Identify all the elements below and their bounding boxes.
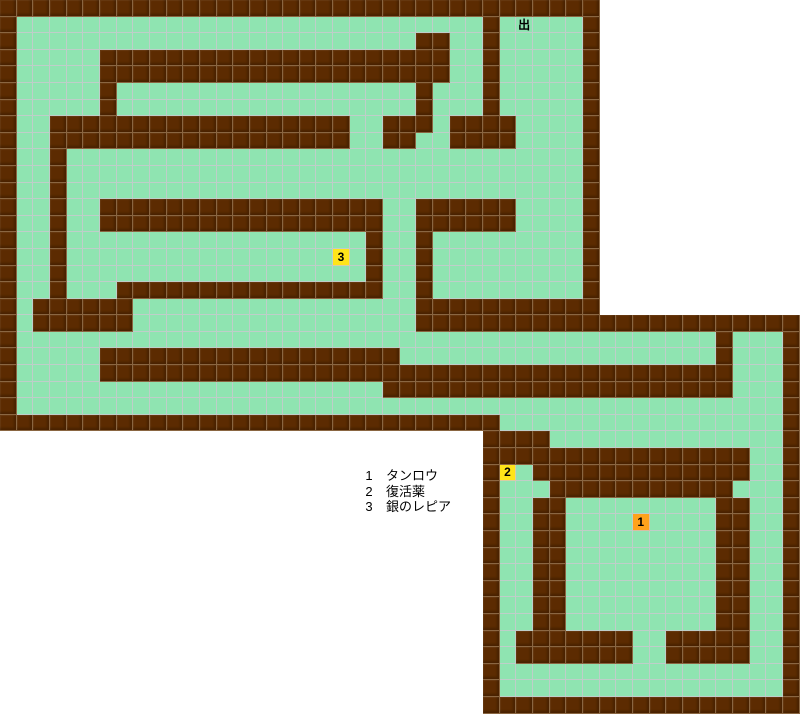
floor-tile	[766, 431, 783, 448]
floor-tile	[167, 315, 184, 332]
floor-tile	[250, 299, 267, 316]
floor-tile	[766, 548, 783, 565]
floor-tile	[516, 116, 533, 133]
empty-cell	[316, 431, 333, 448]
floor-tile	[167, 266, 184, 283]
floor-tile	[133, 315, 150, 332]
empty-cell	[716, 66, 733, 83]
floor-tile	[416, 133, 433, 150]
empty-cell	[666, 133, 683, 150]
floor-tile	[750, 514, 767, 531]
floor-tile	[766, 664, 783, 681]
wall-tile	[250, 66, 267, 83]
wall-tile	[483, 17, 500, 34]
wall-tile	[466, 415, 483, 432]
wall-tile	[550, 564, 567, 581]
empty-cell	[433, 631, 450, 648]
floor-tile	[516, 33, 533, 50]
empty-cell	[0, 465, 17, 482]
legend-item-3: 3 銀のレピア	[365, 499, 451, 515]
floor-tile	[466, 149, 483, 166]
wall-tile	[650, 365, 667, 382]
wall-tile	[733, 597, 750, 614]
wall-tile	[583, 183, 600, 200]
floor-tile	[516, 133, 533, 150]
empty-cell	[750, 149, 767, 166]
floor-tile	[700, 548, 717, 565]
wall-tile	[333, 66, 350, 83]
empty-cell	[666, 83, 683, 100]
empty-cell	[683, 0, 700, 17]
empty-cell	[67, 581, 84, 598]
wall-tile	[117, 0, 134, 17]
floor-tile	[316, 166, 333, 183]
empty-cell	[283, 465, 300, 482]
empty-cell	[283, 680, 300, 697]
floor-tile	[583, 398, 600, 415]
floor-tile	[350, 249, 367, 266]
empty-cell	[733, 149, 750, 166]
wall-tile	[167, 50, 184, 67]
floor-tile	[217, 33, 234, 50]
floor-tile	[616, 564, 633, 581]
empty-cell	[50, 614, 67, 631]
floor-tile	[117, 183, 134, 200]
floor-tile	[33, 133, 50, 150]
floor-tile	[466, 17, 483, 34]
wall-tile	[583, 697, 600, 714]
floor-tile	[450, 17, 467, 34]
wall-tile	[666, 382, 683, 399]
floor-tile	[150, 299, 167, 316]
wall-tile	[700, 631, 717, 648]
wall-tile	[616, 315, 633, 332]
empty-cell	[783, 166, 800, 183]
empty-cell	[200, 548, 217, 565]
wall-tile	[783, 348, 800, 365]
empty-cell	[33, 680, 50, 697]
empty-cell	[750, 66, 767, 83]
floor-tile	[17, 249, 34, 266]
floor-tile	[666, 564, 683, 581]
floor-tile	[383, 282, 400, 299]
empty-cell	[17, 564, 34, 581]
wall-tile	[616, 647, 633, 664]
wall-tile	[366, 365, 383, 382]
wall-tile	[366, 348, 383, 365]
wall-tile	[416, 216, 433, 233]
floor-tile	[133, 17, 150, 34]
empty-cell	[183, 680, 200, 697]
floor-tile	[167, 249, 184, 266]
empty-cell	[133, 647, 150, 664]
floor-tile	[350, 149, 367, 166]
floor-tile	[100, 266, 117, 283]
wall-tile	[133, 216, 150, 233]
floor-tile	[167, 398, 184, 415]
wall-tile	[516, 315, 533, 332]
floor-tile	[533, 33, 550, 50]
wall-tile	[433, 299, 450, 316]
floor-tile	[217, 398, 234, 415]
empty-cell	[267, 514, 284, 531]
floor-tile	[700, 398, 717, 415]
empty-cell	[33, 431, 50, 448]
empty-cell	[250, 465, 267, 482]
floor-tile	[17, 33, 34, 50]
floor-tile	[500, 33, 517, 50]
empty-cell	[167, 465, 184, 482]
empty-cell	[0, 680, 17, 697]
wall-tile	[533, 581, 550, 598]
floor-tile	[683, 431, 700, 448]
wall-tile	[666, 647, 683, 664]
empty-cell	[716, 83, 733, 100]
floor-tile	[433, 149, 450, 166]
wall-tile	[483, 481, 500, 498]
empty-cell	[283, 647, 300, 664]
empty-cell	[366, 548, 383, 565]
floor-tile	[433, 83, 450, 100]
empty-cell	[450, 647, 467, 664]
wall-tile	[466, 133, 483, 150]
floor-tile	[483, 149, 500, 166]
floor-tile	[483, 232, 500, 249]
floor-tile	[100, 398, 117, 415]
floor-tile	[516, 199, 533, 216]
wall-tile	[400, 116, 417, 133]
floor-tile	[400, 348, 417, 365]
wall-tile	[483, 66, 500, 83]
floor-tile	[766, 465, 783, 482]
floor-tile	[433, 133, 450, 150]
wall-tile	[583, 33, 600, 50]
wall-tile	[283, 133, 300, 150]
floor-tile	[267, 83, 284, 100]
floor-tile	[83, 149, 100, 166]
floor-tile	[83, 199, 100, 216]
floor-tile	[366, 332, 383, 349]
empty-cell	[183, 597, 200, 614]
floor-tile	[500, 614, 517, 631]
floor-tile	[733, 365, 750, 382]
empty-cell	[217, 548, 234, 565]
wall-tile	[583, 166, 600, 183]
empty-cell	[600, 249, 617, 266]
empty-cell	[433, 564, 450, 581]
floor-tile	[466, 183, 483, 200]
wall-tile	[133, 66, 150, 83]
empty-cell	[250, 581, 267, 598]
floor-tile	[533, 332, 550, 349]
floor-tile	[83, 282, 100, 299]
empty-cell	[0, 498, 17, 515]
wall-tile	[683, 647, 700, 664]
wall-tile	[716, 697, 733, 714]
wall-tile	[716, 332, 733, 349]
wall-tile	[450, 299, 467, 316]
floor-tile	[650, 548, 667, 565]
wall-tile	[67, 299, 84, 316]
wall-tile	[183, 133, 200, 150]
wall-tile	[483, 597, 500, 614]
wall-tile	[250, 0, 267, 17]
floor-tile	[516, 465, 533, 482]
wall-tile	[633, 481, 650, 498]
wall-tile	[683, 448, 700, 465]
floor-tile	[316, 183, 333, 200]
floor-tile	[33, 17, 50, 34]
floor-tile	[550, 50, 567, 67]
floor-tile	[550, 282, 567, 299]
empty-cell	[600, 232, 617, 249]
empty-cell	[416, 647, 433, 664]
empty-cell	[416, 564, 433, 581]
empty-cell	[683, 50, 700, 67]
floor-tile	[350, 382, 367, 399]
floor-tile	[17, 17, 34, 34]
floor-tile	[383, 149, 400, 166]
floor-tile	[400, 149, 417, 166]
wall-tile	[583, 100, 600, 117]
empty-cell	[267, 465, 284, 482]
empty-cell	[783, 116, 800, 133]
floor-tile	[633, 398, 650, 415]
floor-tile	[450, 232, 467, 249]
floor-tile	[766, 332, 783, 349]
empty-cell	[0, 664, 17, 681]
wall-tile	[33, 299, 50, 316]
floor-tile	[666, 332, 683, 349]
empty-cell	[117, 697, 134, 714]
empty-cell	[100, 448, 117, 465]
wall-tile	[150, 66, 167, 83]
wall-tile	[550, 631, 567, 648]
empty-cell	[283, 514, 300, 531]
wall-tile	[516, 299, 533, 316]
floor-tile	[716, 415, 733, 432]
floor-tile	[483, 266, 500, 283]
empty-cell	[300, 581, 317, 598]
floor-tile	[33, 365, 50, 382]
empty-cell	[633, 149, 650, 166]
floor-tile	[67, 17, 84, 34]
empty-cell	[117, 465, 134, 482]
empty-cell	[683, 282, 700, 299]
empty-cell	[383, 664, 400, 681]
floor-tile	[133, 33, 150, 50]
empty-cell	[300, 465, 317, 482]
wall-tile	[283, 116, 300, 133]
floor-tile	[733, 664, 750, 681]
empty-cell	[400, 631, 417, 648]
wall-tile	[583, 465, 600, 482]
wall-tile	[383, 365, 400, 382]
empty-cell	[716, 17, 733, 34]
empty-cell	[316, 498, 333, 515]
wall-tile	[650, 448, 667, 465]
floor-tile	[200, 382, 217, 399]
wall-tile	[416, 232, 433, 249]
floor-tile	[283, 17, 300, 34]
wall-tile	[783, 431, 800, 448]
wall-tile	[483, 315, 500, 332]
floor-tile	[533, 232, 550, 249]
empty-cell	[333, 597, 350, 614]
floor-tile	[283, 382, 300, 399]
wall-tile	[433, 315, 450, 332]
empty-cell	[616, 100, 633, 117]
wall-tile	[600, 647, 617, 664]
empty-cell	[633, 33, 650, 50]
floor-tile	[217, 183, 234, 200]
floor-tile	[466, 282, 483, 299]
floor-tile	[683, 332, 700, 349]
wall-tile	[716, 514, 733, 531]
empty-cell	[350, 448, 367, 465]
floor-tile	[383, 17, 400, 34]
empty-cell	[650, 83, 667, 100]
empty-cell	[650, 0, 667, 17]
floor-tile	[500, 531, 517, 548]
wall-tile	[50, 133, 67, 150]
floor-tile	[500, 66, 517, 83]
empty-cell	[400, 531, 417, 548]
empty-cell	[433, 597, 450, 614]
floor-tile	[566, 199, 583, 216]
wall-tile	[366, 266, 383, 283]
floor-tile	[33, 116, 50, 133]
empty-cell	[716, 282, 733, 299]
floor-tile	[750, 448, 767, 465]
floor-tile	[267, 149, 284, 166]
wall-tile	[450, 382, 467, 399]
empty-cell	[716, 50, 733, 67]
floor-tile	[450, 348, 467, 365]
floor-tile	[283, 266, 300, 283]
wall-tile	[250, 216, 267, 233]
floor-tile	[433, 166, 450, 183]
empty-cell	[700, 33, 717, 50]
floor-tile	[700, 581, 717, 598]
wall-tile	[666, 481, 683, 498]
floor-tile	[566, 149, 583, 166]
floor-tile	[566, 531, 583, 548]
wall-tile	[616, 697, 633, 714]
empty-cell	[700, 0, 717, 17]
wall-tile	[733, 647, 750, 664]
floor-tile	[516, 266, 533, 283]
floor-tile	[750, 382, 767, 399]
wall-tile	[333, 282, 350, 299]
empty-cell	[350, 564, 367, 581]
wall-tile	[433, 382, 450, 399]
empty-cell	[750, 299, 767, 316]
floor-tile	[83, 216, 100, 233]
wall-tile	[633, 465, 650, 482]
wall-tile	[133, 282, 150, 299]
wall-tile	[233, 66, 250, 83]
empty-cell	[50, 564, 67, 581]
empty-cell	[616, 266, 633, 283]
floor-tile	[516, 282, 533, 299]
empty-cell	[333, 465, 350, 482]
empty-cell	[150, 680, 167, 697]
floor-tile	[600, 564, 617, 581]
floor-tile	[333, 398, 350, 415]
wall-tile	[500, 448, 517, 465]
floor-tile	[167, 332, 184, 349]
wall-tile	[500, 133, 517, 150]
wall-tile	[416, 249, 433, 266]
empty-cell	[283, 481, 300, 498]
wall-tile	[500, 365, 517, 382]
wall-tile	[233, 415, 250, 432]
empty-cell	[433, 448, 450, 465]
floor-tile	[450, 83, 467, 100]
floor-tile	[650, 664, 667, 681]
empty-cell	[133, 481, 150, 498]
wall-tile	[566, 647, 583, 664]
floor-tile	[300, 100, 317, 117]
empty-cell	[33, 514, 50, 531]
wall-tile	[50, 149, 67, 166]
empty-cell	[466, 564, 483, 581]
wall-tile	[450, 365, 467, 382]
wall-tile	[350, 0, 367, 17]
floor-tile	[267, 299, 284, 316]
wall-tile	[416, 116, 433, 133]
wall-tile	[483, 647, 500, 664]
empty-cell	[333, 664, 350, 681]
empty-cell	[716, 266, 733, 283]
floor-tile	[316, 382, 333, 399]
wall-tile	[416, 50, 433, 67]
empty-cell	[117, 680, 134, 697]
wall-tile	[50, 282, 67, 299]
empty-cell	[600, 17, 617, 34]
wall-tile	[0, 116, 17, 133]
empty-cell	[333, 448, 350, 465]
floor-tile	[117, 149, 134, 166]
wall-tile	[733, 448, 750, 465]
wall-tile	[67, 315, 84, 332]
wall-tile	[450, 415, 467, 432]
floor-tile	[766, 631, 783, 648]
wall-tile	[550, 448, 567, 465]
empty-cell	[633, 232, 650, 249]
floor-tile	[733, 332, 750, 349]
floor-tile	[633, 581, 650, 598]
empty-cell	[716, 232, 733, 249]
floor-tile	[633, 647, 650, 664]
empty-cell	[766, 116, 783, 133]
wall-tile	[350, 348, 367, 365]
floor-tile	[633, 614, 650, 631]
floor-tile	[683, 514, 700, 531]
floor-tile	[117, 382, 134, 399]
wall-tile	[150, 216, 167, 233]
floor-tile	[550, 183, 567, 200]
floor-tile	[100, 332, 117, 349]
empty-cell	[233, 498, 250, 515]
empty-cell	[133, 548, 150, 565]
floor-tile	[633, 597, 650, 614]
wall-tile	[500, 116, 517, 133]
empty-cell	[783, 83, 800, 100]
wall-tile	[300, 199, 317, 216]
floor-tile	[316, 149, 333, 166]
